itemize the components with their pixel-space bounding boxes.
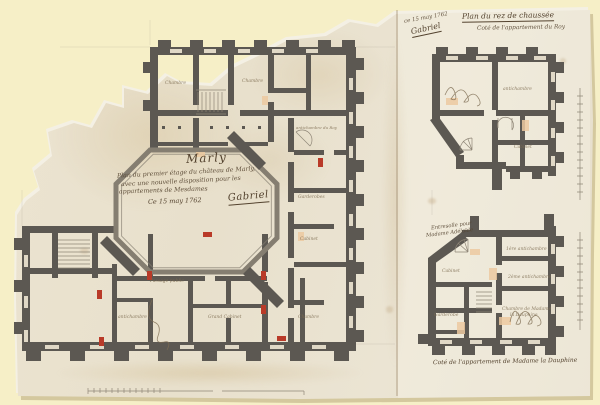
room-label: Garderobe [434,314,458,319]
room-label: Passage public [150,280,184,285]
room-label: la Dauphine [510,314,538,319]
scale-bar-right-bottom [577,232,583,330]
room-label: Cabinet [442,270,460,275]
room-label: Cabinet [300,238,318,243]
room-label: antichambre du Roy [296,126,337,130]
corridor-columns [162,126,261,129]
scanned-drawing: Marly Plan du premier étage du château d… [0,0,600,405]
room-label: Grand Cabinet [208,316,241,321]
room-label: Garderobes [298,196,325,201]
room-label: Cabinet [514,146,532,151]
room-label: antichambre [503,88,532,93]
scale-bar-right-top [577,88,583,200]
ground-plan-title: Plan du rez de chaussée [462,11,554,22]
plan-drawing [0,0,600,405]
ground-floor-plan [430,47,564,190]
room-label: Chambre [165,82,186,87]
room-label: Chambre de Madame [502,308,551,313]
room-label: Chambre [298,316,319,321]
room-label: antichambre [118,316,147,321]
room-label: 1ère antichambre [506,248,547,253]
main-date: Ce 15 may 1762 [148,197,202,205]
scale-bar-bottom [88,388,304,395]
room-label: Chambre [242,80,263,85]
room-label: 2ème antichambre [508,276,551,281]
stairs [460,117,514,150]
main-title: Marly [186,151,227,165]
